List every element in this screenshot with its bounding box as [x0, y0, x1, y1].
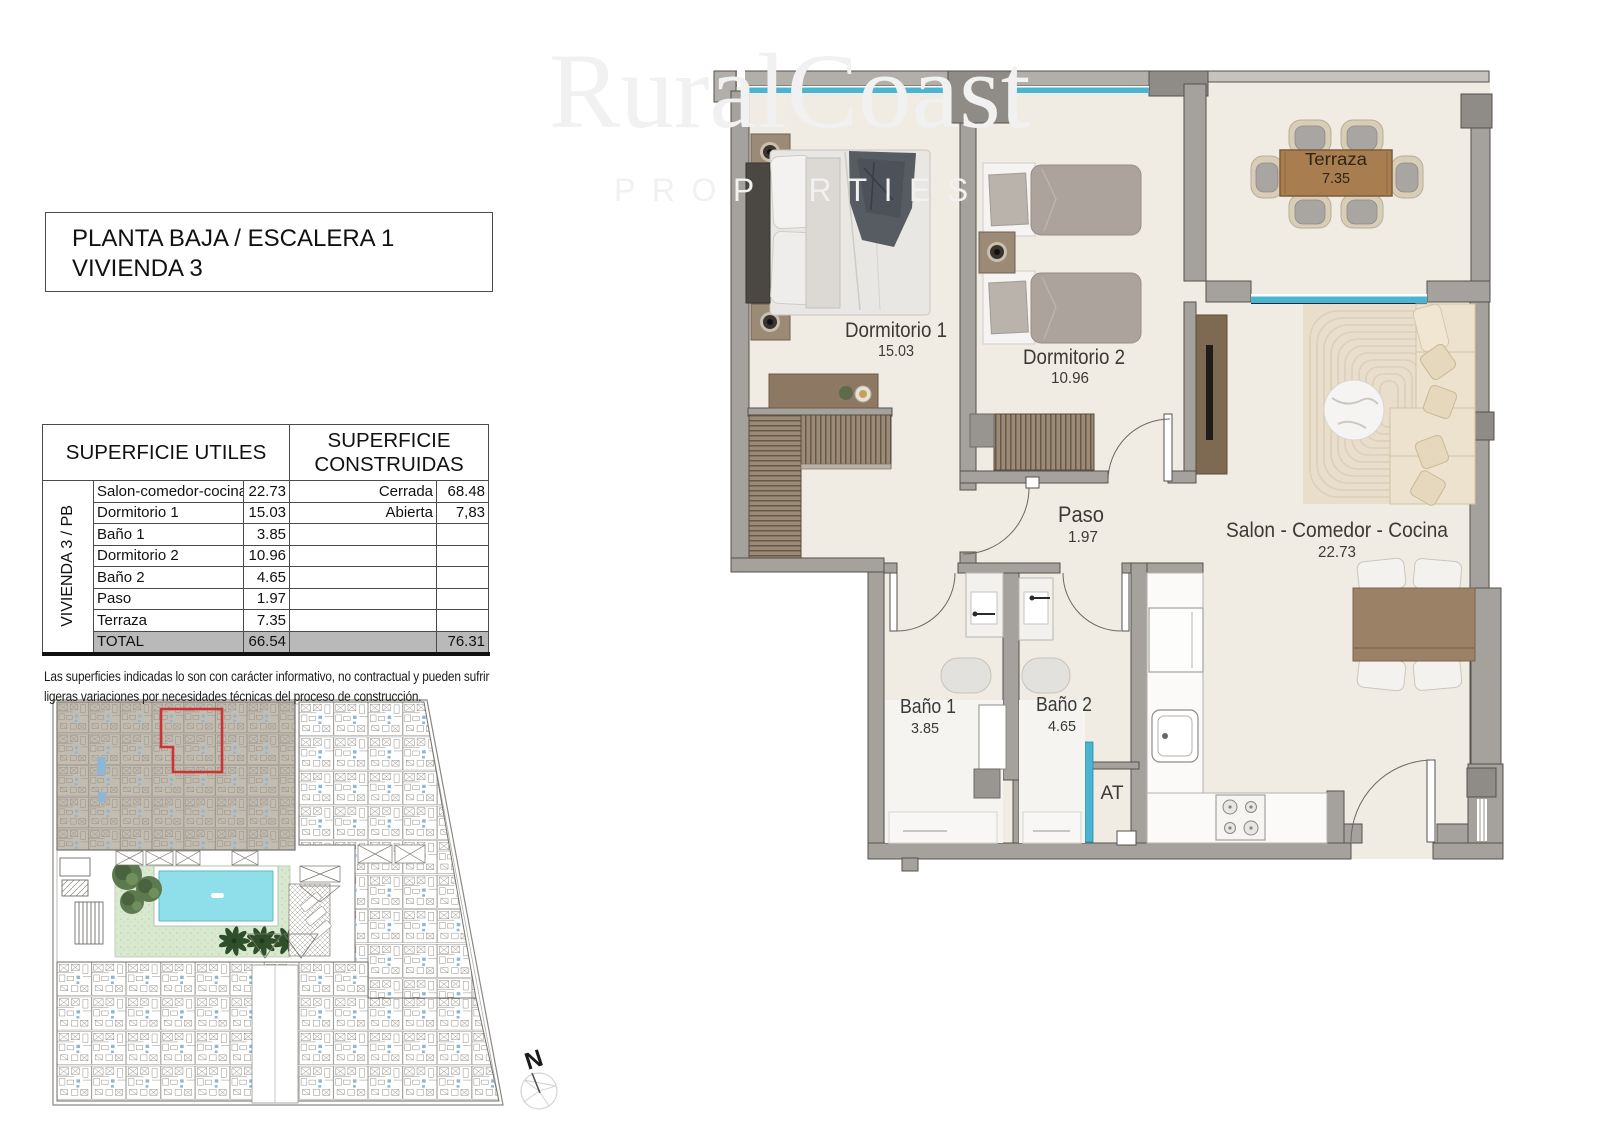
svg-text:15.03: 15.03 — [878, 343, 914, 360]
svg-text:Dormitorio 1: Dormitorio 1 — [845, 319, 947, 342]
svg-text:7.35: 7.35 — [1322, 171, 1350, 187]
svg-text:Terraza: Terraza — [1305, 149, 1367, 169]
svg-text:N: N — [522, 1045, 547, 1076]
svg-text:Dormitorio 2: Dormitorio 2 — [1023, 346, 1125, 369]
svg-text:Baño 1: Baño 1 — [900, 696, 956, 718]
svg-text:3.85: 3.85 — [911, 720, 939, 737]
svg-text:10.96: 10.96 — [1051, 370, 1089, 387]
svg-text:22.73: 22.73 — [1318, 544, 1356, 561]
svg-text:Salon - Comedor - Cocina: Salon - Comedor - Cocina — [1226, 518, 1448, 542]
svg-text:Baño 2: Baño 2 — [1036, 694, 1092, 716]
svg-text:AT: AT — [1101, 783, 1124, 804]
svg-text:Paso: Paso — [1058, 502, 1104, 527]
svg-text:4.65: 4.65 — [1048, 718, 1076, 735]
svg-text:1.97: 1.97 — [1068, 529, 1098, 546]
